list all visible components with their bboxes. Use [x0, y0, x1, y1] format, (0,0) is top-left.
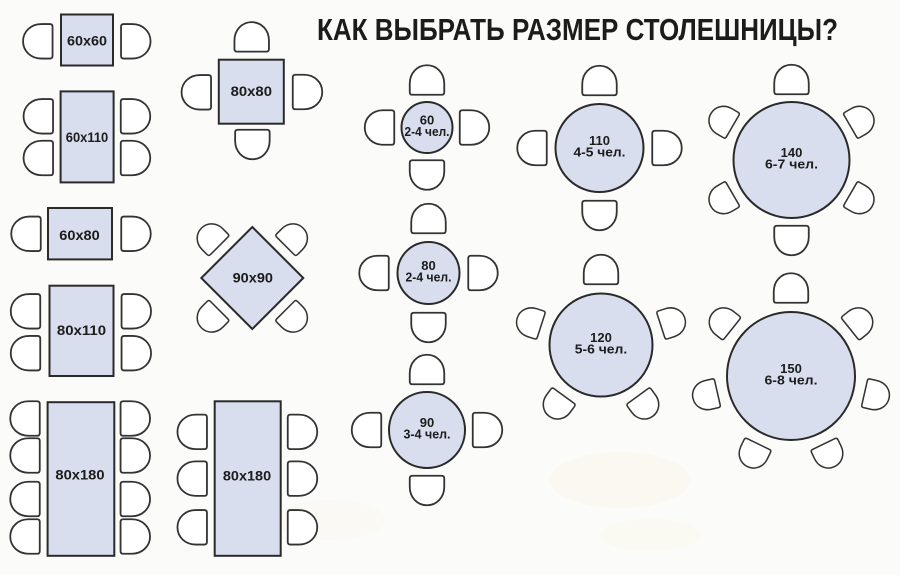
svg-text:5-6 чел.: 5-6 чел.: [575, 342, 628, 357]
svg-text:60x80: 60x80: [59, 228, 100, 243]
svg-text:80x180: 80x180: [223, 469, 271, 484]
svg-text:6-8 чел.: 6-8 чел.: [765, 373, 818, 388]
svg-text:2-4 чел.: 2-4 чел.: [405, 124, 450, 139]
svg-text:60x60: 60x60: [67, 34, 107, 49]
svg-text:6-7 чел.: 6-7 чел.: [765, 157, 818, 172]
svg-text:80x180: 80x180: [55, 468, 104, 483]
svg-text:90x90: 90x90: [233, 271, 273, 286]
svg-text:КАК ВЫБРАТЬ РАЗМЕР СТОЛЕШНИЦЫ?: КАК ВЫБРАТЬ РАЗМЕР СТОЛЕШНИЦЫ?: [317, 13, 838, 47]
svg-text:4-5 чел.: 4-5 чел.: [574, 145, 626, 160]
svg-text:80x80: 80x80: [231, 84, 272, 99]
svg-text:80x110: 80x110: [57, 323, 106, 338]
svg-text:3-4 чел.: 3-4 чел.: [404, 427, 451, 442]
svg-text:60x110: 60x110: [66, 130, 109, 145]
svg-text:2-4 чел.: 2-4 чел.: [406, 270, 452, 285]
